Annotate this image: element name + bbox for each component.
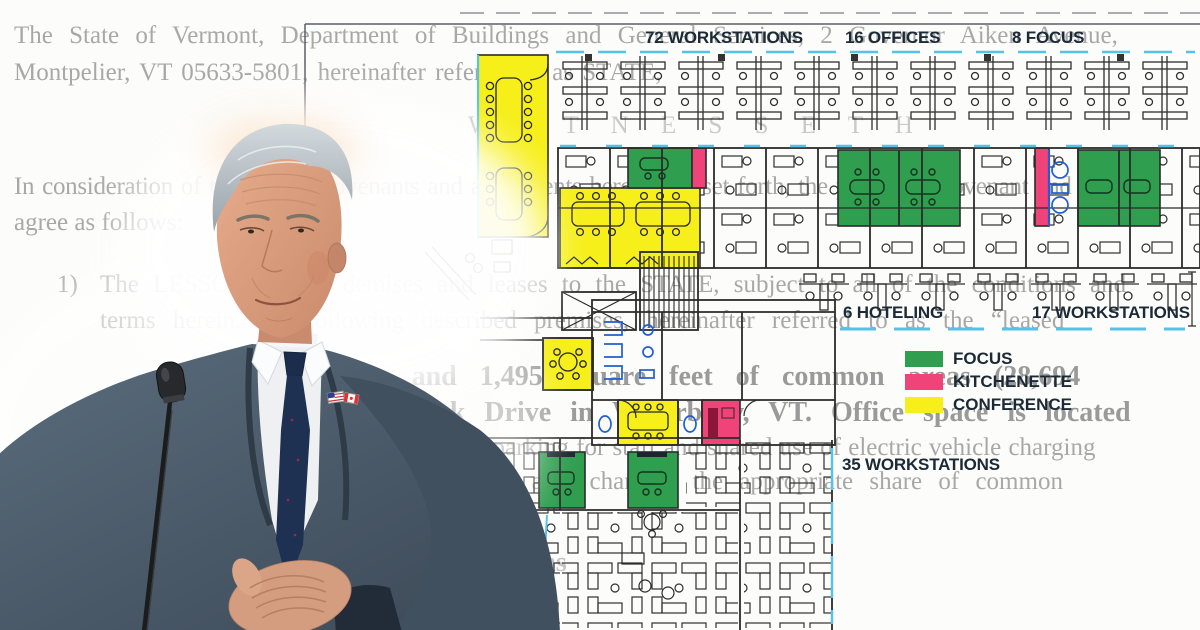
legend-swatch-kitchenette: [905, 374, 943, 390]
legend-swatch-focus: [905, 351, 943, 367]
legend-row-kitchenette: KITCHENETTE: [905, 373, 1072, 391]
collage-canvas: The State of Vermont, Department of Buil…: [0, 0, 1200, 630]
label-workstations-right: 17 WORKSTATIONS: [1032, 303, 1190, 323]
legend-swatch-conference: [905, 397, 943, 413]
label-workstations-bottom: 35 WORKSTATIONS: [842, 455, 1000, 475]
label-focus: 8 FOCUS: [1012, 28, 1084, 48]
legend-label-conference: CONFERENCE: [953, 395, 1072, 415]
label-offices: 16 OFFICES: [845, 28, 940, 48]
plan-legend: FOCUS KITCHENETTE CONFERENCE: [905, 350, 1072, 414]
label-hoteling: 6 HOTELING: [843, 303, 943, 323]
floor-plan-drawing: [0, 0, 1200, 630]
label-workstations-top: 72 WORKSTATIONS: [645, 28, 803, 48]
legend-label-kitchenette: KITCHENETTE: [953, 372, 1072, 392]
legend-row-conference: CONFERENCE: [905, 396, 1072, 414]
legend-label-focus: FOCUS: [953, 349, 1013, 369]
legend-row-focus: FOCUS: [905, 350, 1072, 368]
